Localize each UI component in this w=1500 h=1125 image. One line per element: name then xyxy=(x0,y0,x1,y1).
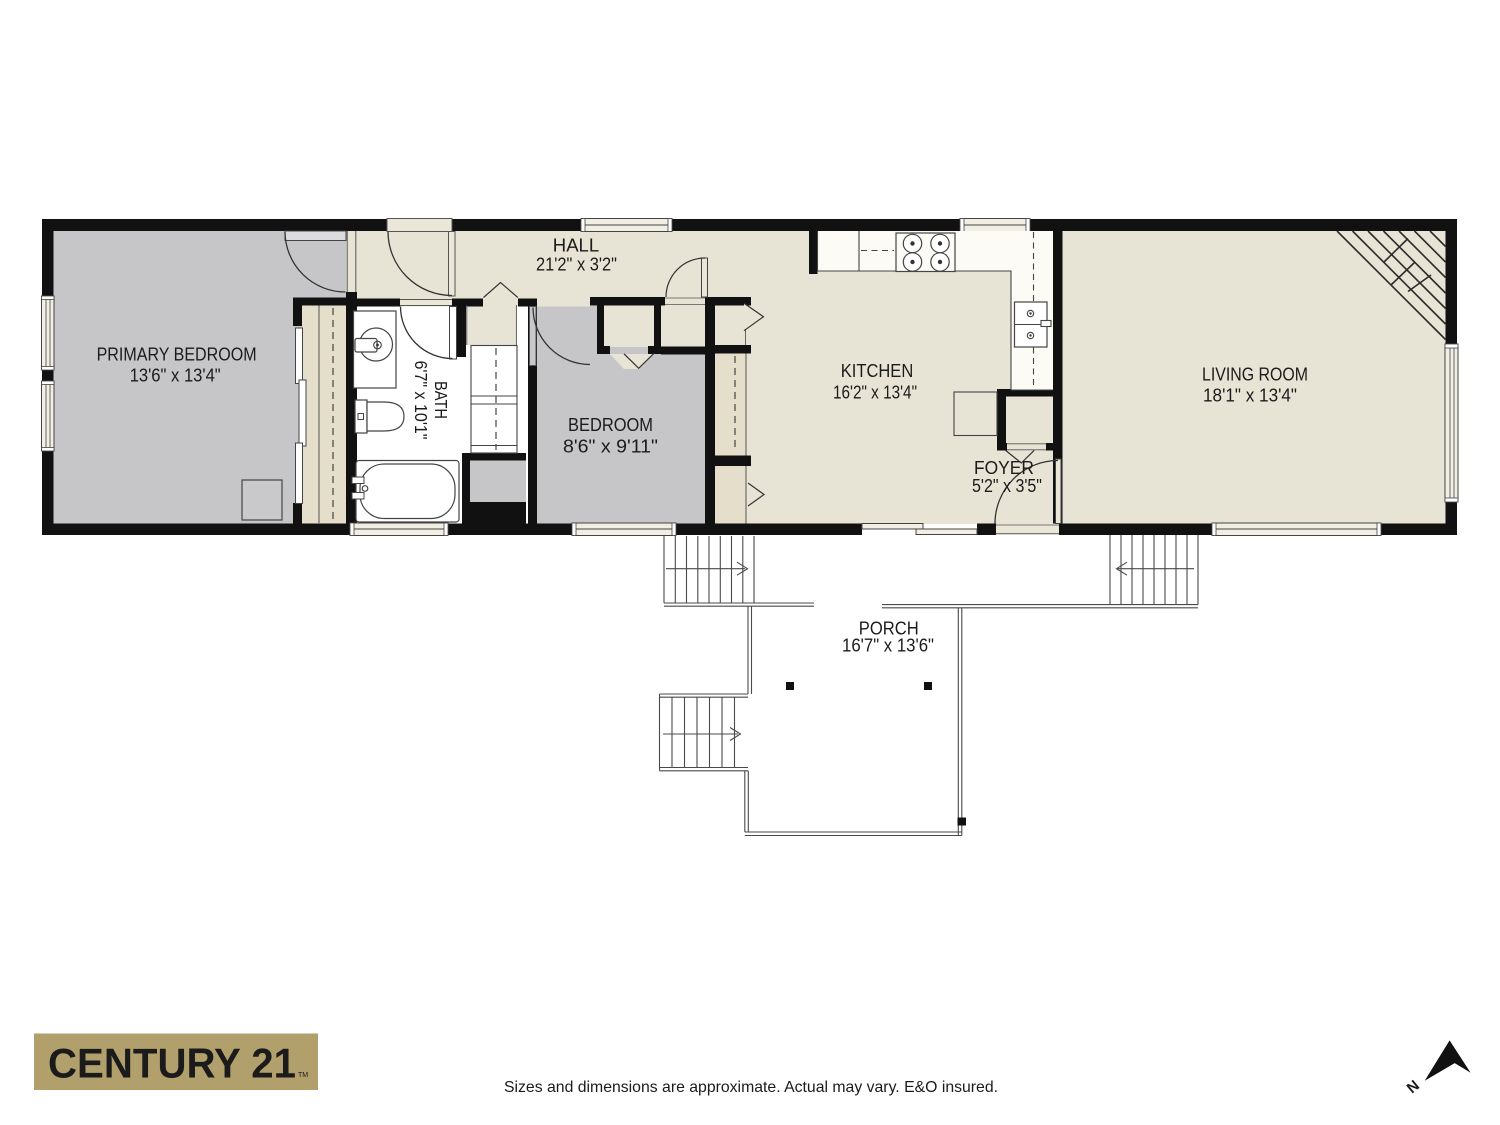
svg-text:16'2" x 13'4": 16'2" x 13'4" xyxy=(833,383,917,403)
svg-text:8'6" x 9'11": 8'6" x 9'11" xyxy=(563,437,658,457)
svg-text:LIVING ROOM: LIVING ROOM xyxy=(1202,365,1308,385)
svg-text:BEDROOM: BEDROOM xyxy=(568,415,653,435)
svg-text:16'7" x 13'6": 16'7" x 13'6" xyxy=(842,636,934,656)
svg-text:13'6" x 13'4": 13'6" x 13'4" xyxy=(130,365,221,385)
svg-text:TM: TM xyxy=(298,1072,308,1079)
svg-text:Sizes and dimensions are appro: Sizes and dimensions are approximate. Ac… xyxy=(504,1079,998,1096)
svg-text:21'2" x 3'2": 21'2" x 3'2" xyxy=(536,255,617,275)
svg-text:18'1" x 13'4": 18'1" x 13'4" xyxy=(1203,386,1297,406)
svg-text:CENTURY 21: CENTURY 21 xyxy=(48,1040,296,1087)
svg-text:HALL: HALL xyxy=(553,236,599,256)
svg-text:FOYER: FOYER xyxy=(974,458,1034,478)
svg-text:KITCHEN: KITCHEN xyxy=(841,361,914,381)
svg-text:5'2" x 3'5": 5'2" x 3'5" xyxy=(972,476,1042,496)
svg-text:BATH: BATH xyxy=(431,381,451,419)
svg-text:PRIMARY BEDROOM: PRIMARY BEDROOM xyxy=(97,344,257,364)
svg-text:6'7" x 10'1": 6'7" x 10'1" xyxy=(411,361,431,440)
